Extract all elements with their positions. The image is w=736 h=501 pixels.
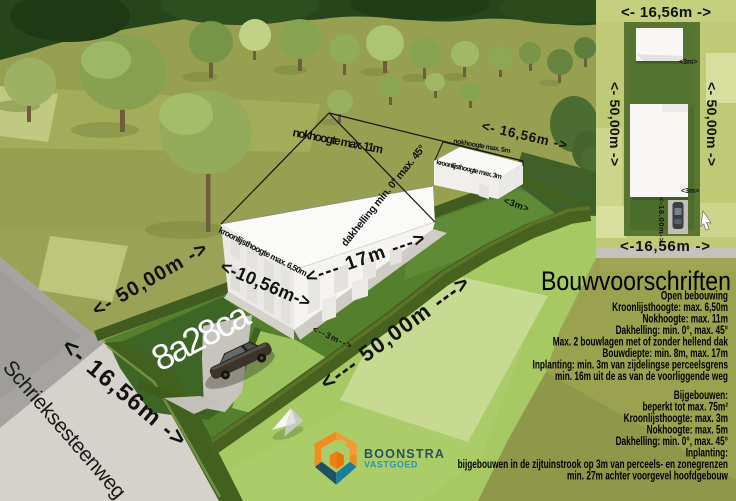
svg-text:<- 50,00m ->: <- 50,00m -> (704, 82, 720, 166)
svg-text:<-16.00m->: <-16.00m-> (657, 197, 666, 243)
svg-text:min. 16m uit de as van de voor: min. 16m uit de as van de voorliggende w… (555, 371, 728, 384)
svg-text:VASTGOED: VASTGOED (364, 460, 418, 470)
svg-text:<3m>: <3m> (681, 188, 699, 195)
svg-text:<- 16,56m ->: <- 16,56m -> (621, 4, 711, 21)
svg-text:<- 50,00m ->: <- 50,00m -> (607, 82, 623, 166)
svg-text:<3m>: <3m> (679, 59, 697, 66)
svg-text:min. 27m achter voorgevel hoof: min. 27m achter voorgevel hoofdgebouw (567, 470, 728, 483)
